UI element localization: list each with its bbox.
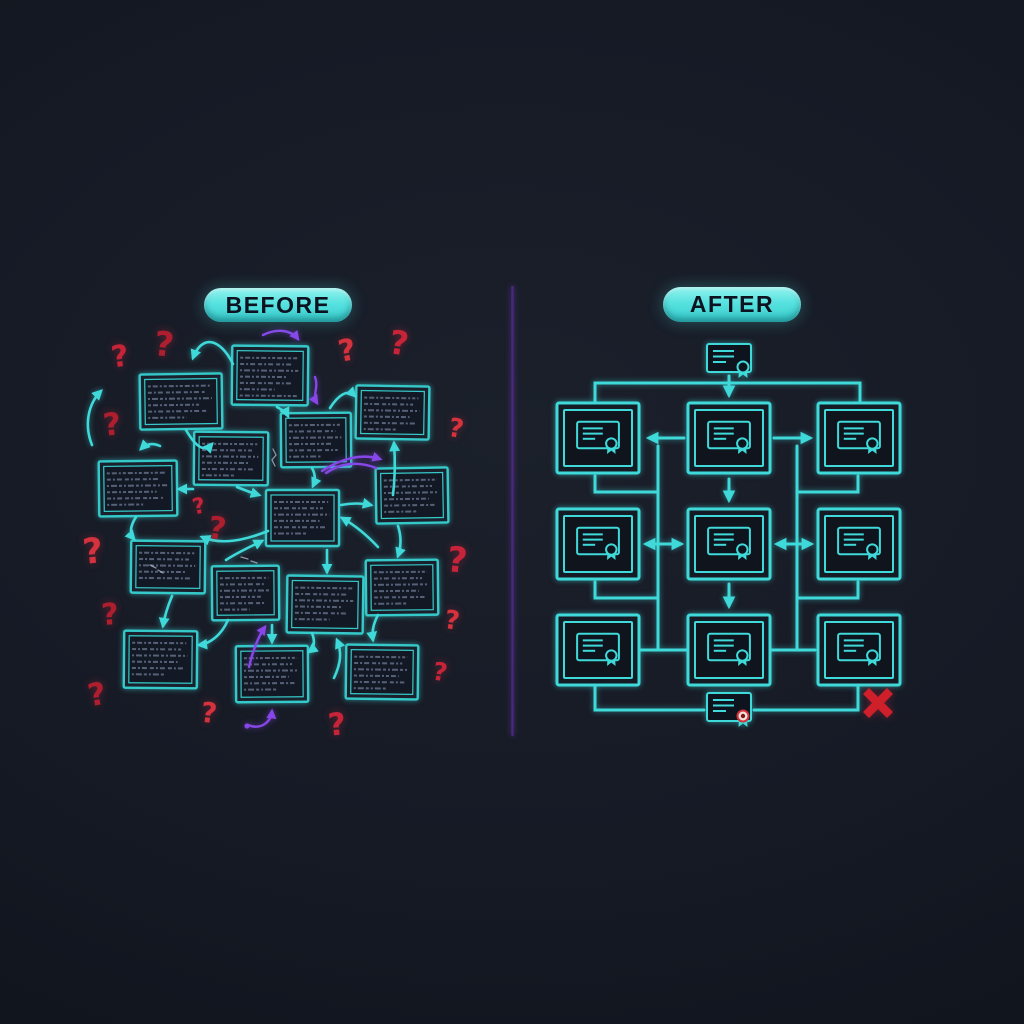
certificate-icon: [838, 422, 880, 454]
scribble-text-line: [139, 559, 189, 560]
certificate-icon: [707, 344, 751, 378]
chaos-box: [124, 631, 197, 689]
certificate-node: [688, 509, 770, 579]
connector-line: [754, 687, 858, 710]
question-mark-icon: ?: [190, 493, 208, 520]
flow-arrow: [226, 541, 262, 560]
certificate-icon: [577, 528, 619, 560]
question-mark-icon: ?: [206, 510, 229, 548]
white-scribble-mark: [241, 557, 257, 563]
certificate-icon: [577, 634, 619, 666]
scribble-text-line: [240, 395, 297, 396]
certificate-icon: [708, 422, 750, 454]
certificate-node: [688, 403, 770, 473]
scribble-text-line: [107, 473, 166, 474]
scribble-text-line: [107, 485, 167, 486]
certificate-seal: [737, 650, 747, 660]
certificate-seal: [606, 438, 616, 448]
flow-arrow: [193, 342, 233, 364]
chaos-box: [236, 646, 308, 703]
chaos-box: [281, 413, 351, 468]
question-mark-icon: ?: [199, 696, 219, 731]
flow-arrow: [312, 468, 315, 486]
certificate-seal: [606, 544, 616, 554]
after-panel: [557, 344, 900, 727]
scribble-text-line: [354, 676, 399, 677]
flow-arrow: [330, 393, 355, 408]
flow-arrow: [199, 620, 228, 645]
question-mark-icon: ?: [446, 413, 466, 445]
before-after-comparison-diagram: ???????????????? BEFORE AFTER: [0, 0, 1024, 1024]
chaos-box: [131, 541, 206, 594]
certificate-seal: [867, 544, 877, 554]
flow-arrow: [248, 711, 272, 727]
certificate-node: [818, 615, 900, 685]
question-mark-icon: ?: [109, 338, 131, 375]
flow-arrow: [373, 615, 378, 640]
certificate-icon: [708, 528, 750, 560]
scribble-text-line: [364, 423, 415, 424]
certificate-node: [688, 615, 770, 685]
chaos-box: [232, 346, 309, 406]
flow-arrow: [342, 518, 378, 547]
purple-dot: [244, 723, 249, 728]
connector-line: [595, 687, 704, 710]
certificate-icon: [577, 422, 619, 454]
flow-arrow: [263, 331, 298, 339]
red-x-group: [866, 691, 890, 715]
chaos-box: [366, 560, 439, 616]
question-mark-icon: ?: [387, 322, 411, 363]
certificate-seal: [737, 438, 747, 448]
question-mark-icon: ?: [326, 706, 347, 743]
scribble-text-line: [295, 588, 352, 589]
question-mark-icon: ?: [442, 605, 461, 637]
certificate-icon: [708, 634, 750, 666]
chaos-box: [194, 432, 268, 486]
scribble-text-line: [384, 499, 429, 500]
chaos-box: [376, 467, 449, 523]
flow-arrow: [309, 633, 314, 652]
chaos-box: [346, 645, 419, 700]
after-label: AFTER: [663, 287, 801, 322]
certificate-node: [557, 509, 639, 579]
flow-arrow: [141, 444, 160, 449]
certificate-seal-dot: [741, 714, 745, 718]
question-mark-icon: ?: [335, 332, 358, 369]
question-mark-icon: ?: [101, 406, 122, 443]
chaos-box: [212, 566, 279, 621]
flow-arrow: [237, 487, 259, 495]
question-mark-icon: ?: [81, 531, 105, 573]
scribble-text-line: [364, 416, 410, 417]
diagram-canvas: ????????????????: [0, 0, 1024, 1024]
certificate-node: [818, 403, 900, 473]
white-scribble-mark: [272, 449, 276, 466]
question-mark-icon: ?: [445, 540, 469, 582]
chaos-box: [356, 385, 430, 439]
scribble-text-line: [295, 606, 343, 607]
before-panel: [88, 342, 449, 702]
connector-line: [595, 582, 658, 598]
question-mark-icon: ?: [100, 597, 120, 633]
question-mark-icon: ?: [152, 324, 176, 366]
connector-line: [797, 582, 858, 598]
certificate-icon: [838, 634, 880, 666]
scribble-text-line: [384, 505, 434, 506]
chaos-box: [99, 461, 178, 517]
flow-arrow: [88, 391, 101, 445]
certificate-seal: [867, 438, 877, 448]
connector-line: [595, 476, 658, 492]
certificate-node: [557, 615, 639, 685]
scribble-text-line: [295, 594, 347, 595]
chaos-box: [266, 490, 339, 546]
certificate-seal: [606, 650, 616, 660]
flow-arrow: [341, 504, 371, 506]
scribble-text-line: [240, 358, 297, 359]
certificate-seal: [738, 362, 749, 373]
flow-arrow: [163, 596, 172, 626]
scribble-text-line: [354, 682, 404, 683]
scribble-text-line: [374, 597, 424, 598]
question-mark-icon: ?: [85, 676, 109, 715]
flow-arrow: [398, 526, 401, 556]
certificate-icon: [707, 693, 751, 727]
flow-arrow: [131, 517, 136, 539]
chaos-box: [287, 575, 364, 633]
flow-arrow: [334, 640, 340, 678]
scribble-text-line: [240, 377, 288, 378]
connector-line: [797, 476, 858, 492]
chaos-box: [140, 373, 223, 429]
certificate-node: [557, 403, 639, 473]
flow-arrow: [315, 377, 317, 403]
scribble-text-line: [240, 364, 292, 365]
certificate-icon: [838, 528, 880, 560]
certificate-seal: [737, 544, 747, 554]
before-label: BEFORE: [204, 288, 352, 322]
certificate-node: [818, 509, 900, 579]
question-mark-icon: ?: [430, 656, 449, 687]
certificate-seal: [867, 650, 877, 660]
